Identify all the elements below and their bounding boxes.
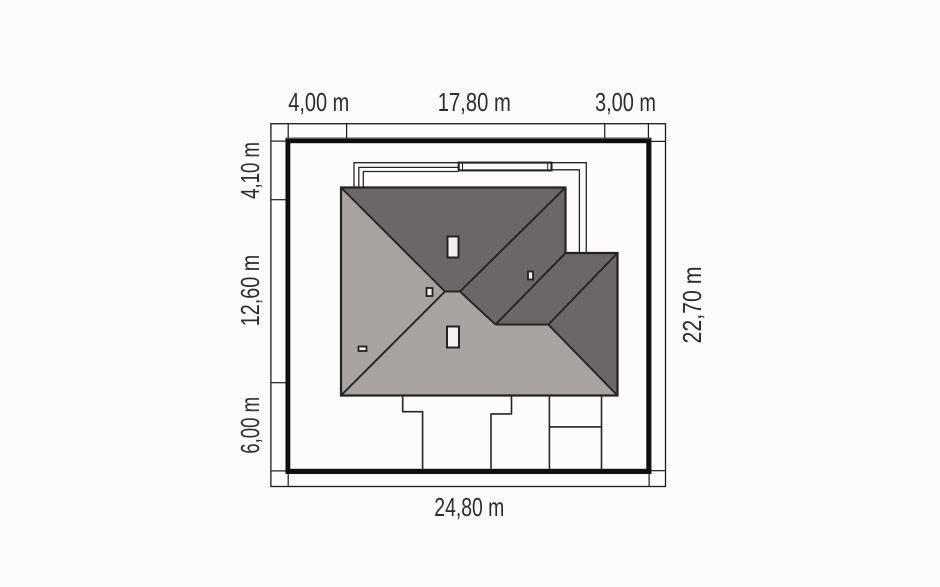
svg-text:3,00 m: 3,00 m <box>595 87 656 117</box>
svg-text:24,80 m: 24,80 m <box>434 492 504 522</box>
svg-text:17,80 m: 17,80 m <box>438 87 511 117</box>
svg-text:4,00 m: 4,00 m <box>288 87 349 117</box>
svg-text:12,60 m: 12,60 m <box>235 255 265 327</box>
svg-text:4,10 m: 4,10 m <box>235 142 265 199</box>
svg-text:22,70 m: 22,70 m <box>677 267 707 344</box>
svg-text:6,00 m: 6,00 m <box>235 397 265 454</box>
